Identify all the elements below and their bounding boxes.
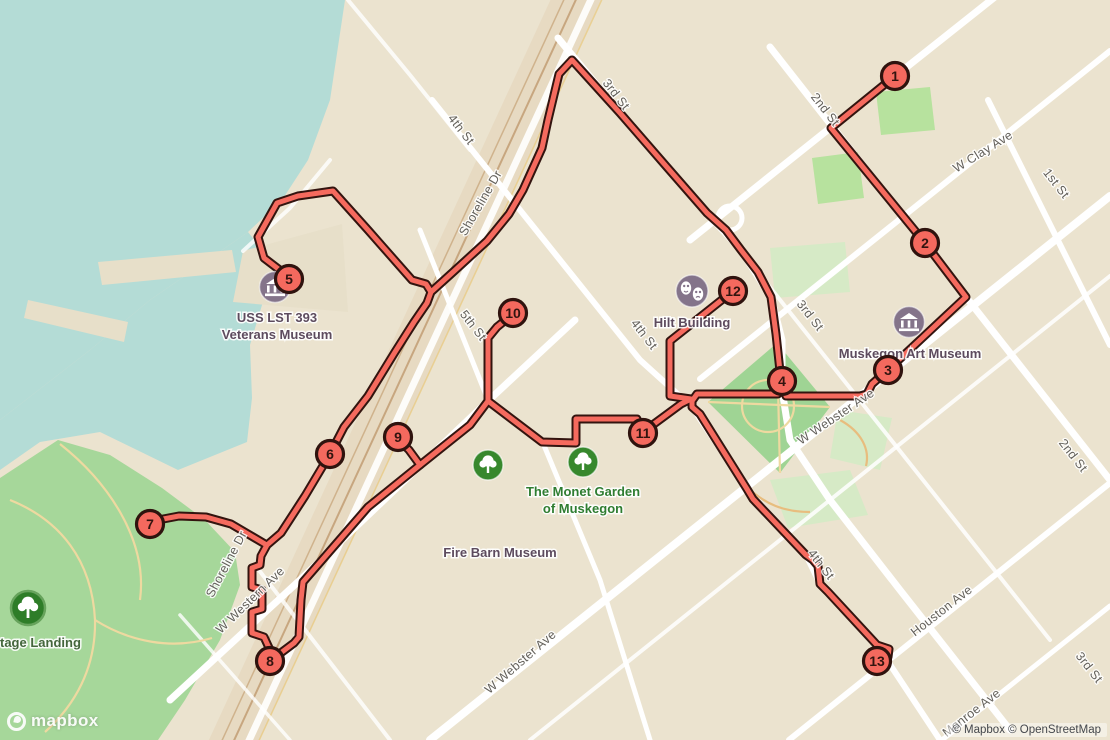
- route-marker[interactable]: 4: [769, 368, 796, 395]
- route-marker-number: 12: [725, 283, 741, 299]
- museum-icon[interactable]: [894, 307, 925, 338]
- route-marker-number: 7: [146, 516, 154, 532]
- poi-label: tage Landing: [0, 635, 81, 650]
- route-marker[interactable]: 11: [630, 420, 657, 447]
- route-marker-number: 4: [778, 373, 786, 389]
- poi-label-line: Muskegon Art Museum: [839, 346, 982, 361]
- route-marker-number: 2: [921, 235, 929, 251]
- route-marker[interactable]: 13: [864, 648, 891, 675]
- route-marker-number: 8: [266, 653, 274, 669]
- map-attribution[interactable]: © Mapbox © OpenStreetMap: [946, 723, 1107, 737]
- poi-label: Muskegon Art Museum: [839, 346, 982, 361]
- route-marker[interactable]: 12: [720, 278, 747, 305]
- poi-label: Fire Barn Museum: [443, 545, 556, 560]
- poi-label-line: The Monet Garden: [526, 484, 640, 499]
- poi-label-line: Fire Barn Museum: [443, 545, 556, 560]
- route-marker[interactable]: 2: [912, 230, 939, 257]
- route-marker[interactable]: 10: [500, 300, 527, 327]
- poi-label-line: USS LST 393: [237, 310, 317, 325]
- park-tree-icon[interactable]: [11, 591, 45, 625]
- theatre-masks-icon[interactable]: [676, 275, 708, 307]
- route-marker-number: 6: [326, 446, 334, 462]
- poi-label: Hilt Building: [654, 315, 731, 330]
- route-marker[interactable]: 3: [875, 357, 902, 384]
- route-marker[interactable]: 1: [882, 63, 909, 90]
- poi-label-line: of Muskegon: [543, 501, 623, 516]
- route-marker-number: 10: [505, 305, 521, 321]
- route-marker-number: 13: [869, 653, 885, 669]
- route-marker-number: 3: [884, 362, 892, 378]
- mapbox-logo[interactable]: mapbox: [7, 711, 99, 731]
- tree-icon[interactable]: [473, 450, 503, 480]
- route-marker-number: 1: [891, 68, 899, 84]
- mapbox-logo-icon: [7, 712, 26, 731]
- tree-icon[interactable]: [568, 447, 598, 477]
- poi-label-line: tage Landing: [0, 635, 81, 650]
- route-marker-number: 9: [394, 429, 402, 445]
- route-marker-number: 11: [636, 425, 651, 441]
- poi-label-line: Hilt Building: [654, 315, 731, 330]
- route-marker[interactable]: 8: [257, 648, 284, 675]
- route-marker-number: 5: [285, 271, 293, 287]
- map-canvas[interactable]: 3rd St2nd St4th StShoreline DrW Clay Ave…: [0, 0, 1110, 740]
- route-marker[interactable]: 5: [276, 266, 303, 293]
- poi-label-line: Veterans Museum: [222, 327, 333, 342]
- mapbox-logo-word: mapbox: [31, 711, 99, 731]
- route-marker[interactable]: 9: [385, 424, 412, 451]
- route-marker[interactable]: 7: [137, 511, 164, 538]
- map-graphics: 3rd St2nd St4th StShoreline DrW Clay Ave…: [0, 0, 1110, 740]
- route-marker[interactable]: 6: [317, 441, 344, 468]
